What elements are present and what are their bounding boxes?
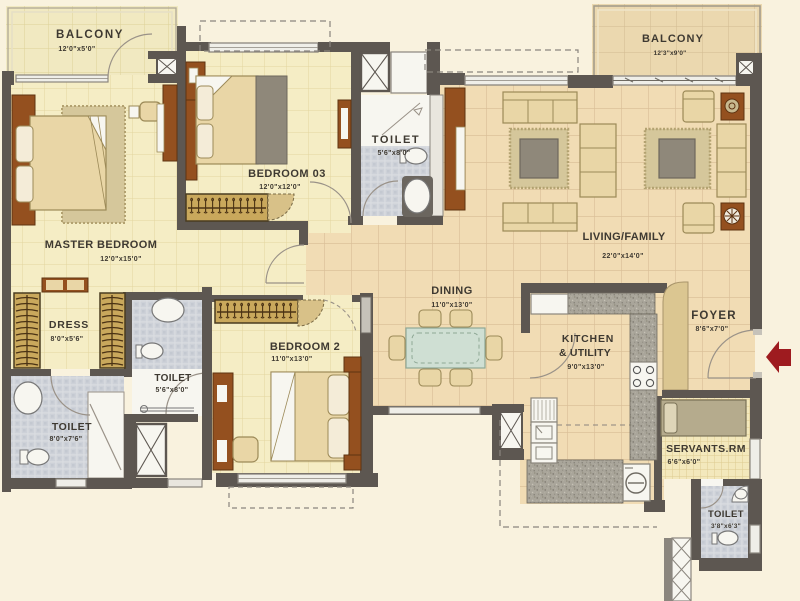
svg-text:BEDROOM 03: BEDROOM 03: [248, 168, 326, 180]
svg-text:6'6"x6'0": 6'6"x6'0": [667, 459, 700, 466]
svg-text:SERVANTS.RM: SERVANTS.RM: [666, 443, 746, 455]
svg-text:DRESS: DRESS: [49, 319, 89, 331]
svg-text:5'6"x8'0": 5'6"x8'0": [155, 387, 188, 394]
svg-text:12'0"x15'0": 12'0"x15'0": [100, 256, 142, 263]
svg-text:8'0"x5'6": 8'0"x5'6": [50, 336, 83, 343]
svg-text:5'6"x8'0": 5'6"x8'0": [377, 150, 410, 157]
svg-text:9'0"x13'0": 9'0"x13'0": [567, 364, 604, 371]
svg-text:TOILET: TOILET: [52, 421, 92, 433]
svg-text:KITCHEN: KITCHEN: [562, 333, 614, 345]
svg-text:8'6"x7'0": 8'6"x7'0": [695, 326, 728, 333]
svg-text:12'3"x9'0": 12'3"x9'0": [654, 50, 687, 57]
svg-text:TOILET: TOILET: [372, 134, 421, 146]
svg-text:12'0"x12'0": 12'0"x12'0": [259, 184, 301, 191]
svg-text:LIVING/FAMILY: LIVING/FAMILY: [583, 231, 666, 243]
svg-text:12'0"x5'0": 12'0"x5'0": [58, 46, 95, 53]
svg-text:11'0"x13'0": 11'0"x13'0": [431, 302, 472, 309]
svg-text:11'0"x13'0": 11'0"x13'0": [271, 356, 312, 363]
svg-text:3'8"x6'3": 3'8"x6'3": [711, 523, 741, 530]
svg-text:DINING: DINING: [431, 285, 473, 297]
svg-text:BALCONY: BALCONY: [642, 33, 704, 45]
svg-text:22'0"x14'0": 22'0"x14'0": [602, 253, 644, 260]
svg-text:FOYER: FOYER: [691, 310, 737, 322]
svg-text:8'0"x7'6": 8'0"x7'6": [49, 436, 82, 443]
svg-text:TOILET: TOILET: [708, 509, 744, 520]
svg-text:MASTER BEDROOM: MASTER BEDROOM: [45, 239, 158, 251]
svg-text:BEDROOM 2: BEDROOM 2: [270, 341, 340, 353]
svg-text:& UTILITY: & UTILITY: [559, 347, 611, 359]
svg-text:BALCONY: BALCONY: [56, 29, 124, 41]
svg-text:TOILET: TOILET: [154, 373, 191, 384]
